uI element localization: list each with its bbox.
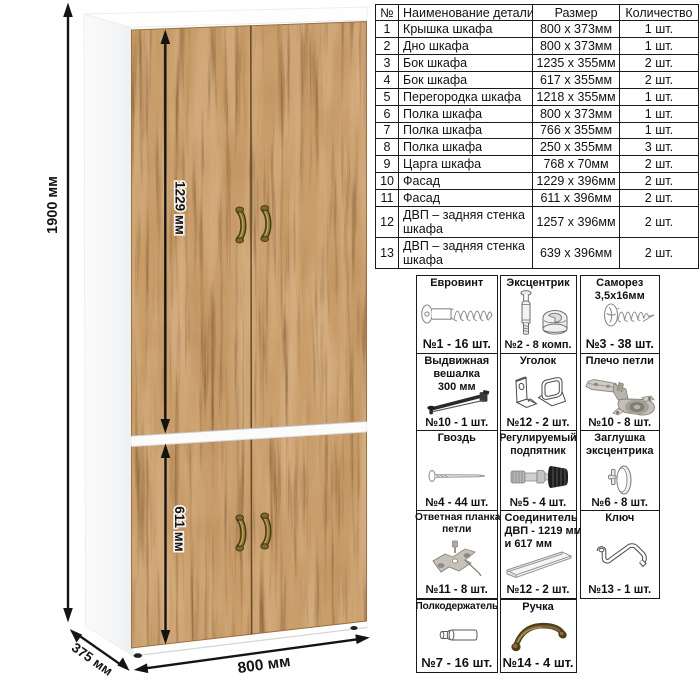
svg-text:800 мм: 800 мм	[237, 653, 292, 677]
svg-text:611 мм: 611 мм	[172, 506, 187, 552]
svg-text:1900 мм: 1900 мм	[45, 176, 61, 234]
svg-text:1229 мм: 1229 мм	[173, 181, 188, 235]
